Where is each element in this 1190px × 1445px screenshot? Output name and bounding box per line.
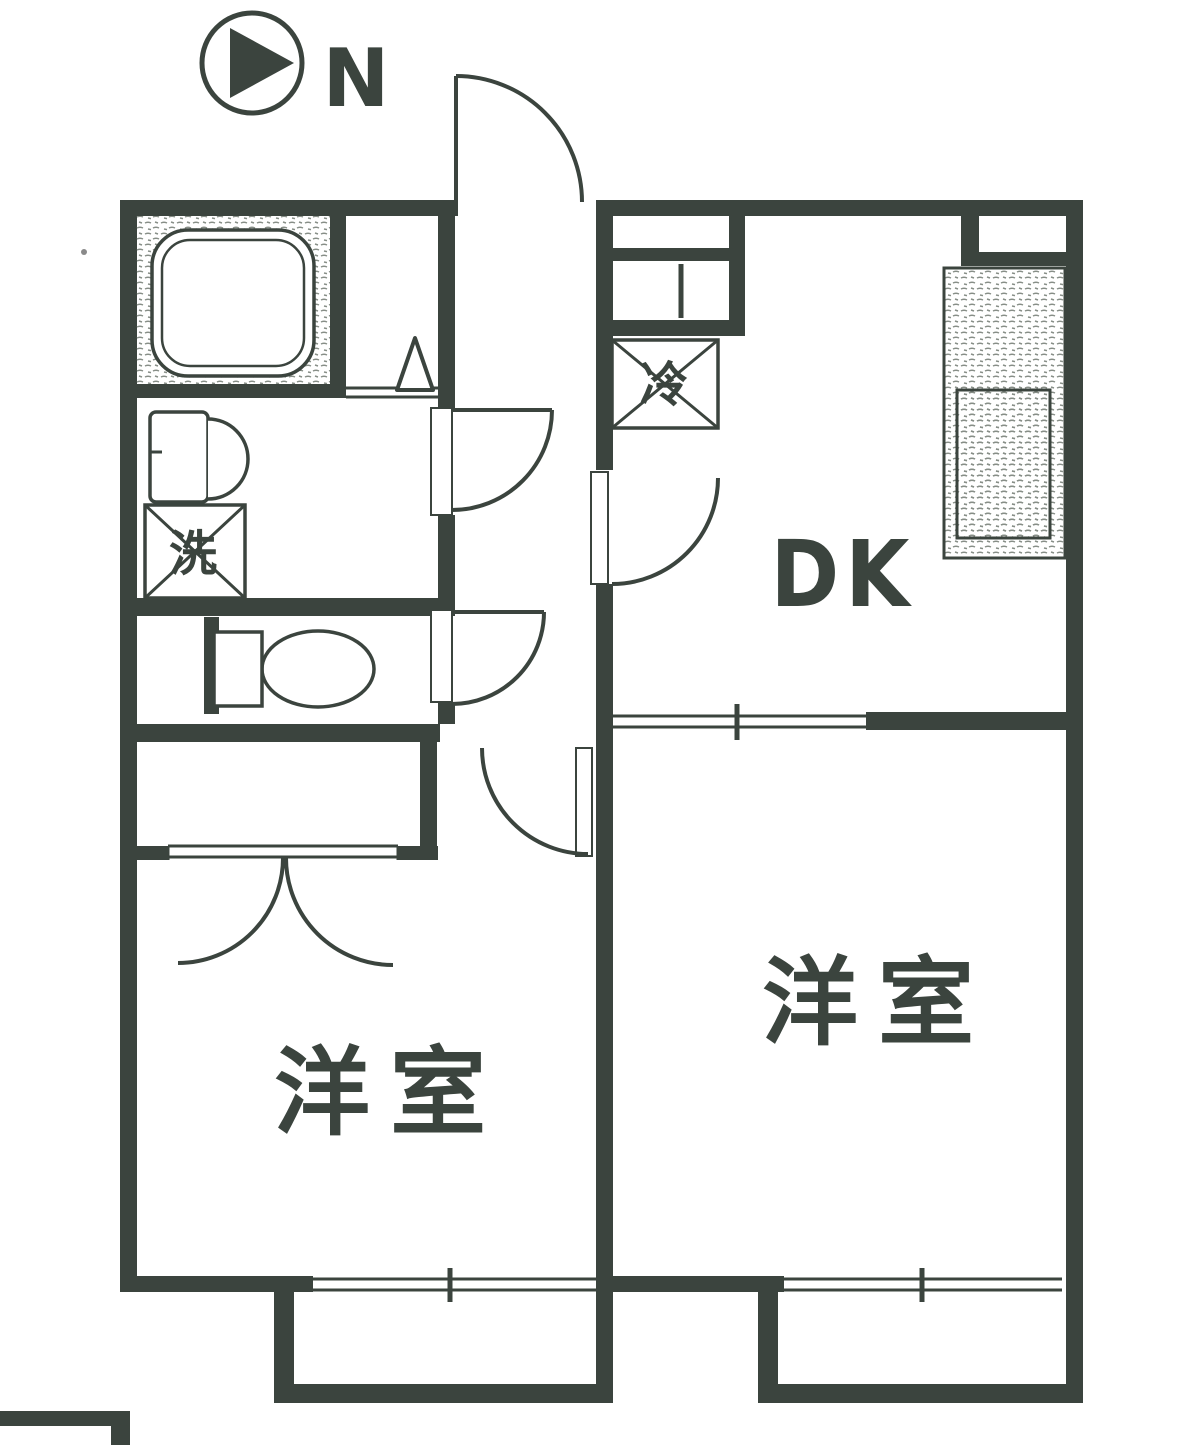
wall-central-lower [596,730,613,1403]
entrance-door-arc [456,76,582,202]
dk-door-arc [612,478,718,584]
bathtub [136,216,330,384]
wall-closet-bottom-west [120,846,168,860]
washroom-door-leaf [431,408,452,515]
toilet-door-arc [452,612,544,704]
wall-toilet-bottom [120,724,440,742]
adjacent-plan-fragment [0,1411,130,1445]
balcony-right-wall-bottom [758,1384,1078,1403]
wall-utility-box-right [729,216,745,328]
wall-washroom-bottom [120,598,455,616]
wall-corridor-left-a [438,216,455,408]
wall-bottom-right-room [596,1276,784,1292]
dk-room-label: DK [771,521,916,628]
kitchen-sink [957,390,1050,538]
toilet-tank [214,632,262,706]
closet-double-doors [168,846,398,965]
wall-left [120,200,137,1292]
wall-top-left [120,200,458,216]
north-label: N [323,32,390,125]
washroom-door-arc [452,410,552,510]
stray-marks [0,249,130,1445]
left-room-window [313,1268,596,1302]
western-room-right-label: 洋室 [762,947,994,1059]
wall-central-upper-b [596,584,613,730]
north-arrow-icon [230,28,294,98]
wall-bottom-left-room [120,1276,313,1292]
wall-bath-right [330,200,346,398]
washing-machine-box: 洗 [145,505,245,598]
toilet-door-leaf [431,610,452,702]
toilet [214,631,374,707]
wall-right [1066,200,1083,1403]
wall-closet-right [420,724,437,860]
dk-door [591,472,718,584]
closet-door-arc-right [286,858,393,965]
washroom-door [431,408,552,515]
wall-corridor-left-b [438,515,455,610]
wall-utility-box-bottom [596,320,745,336]
floor-plan-drawing: N [0,0,1190,1445]
washing-machine-label: 洗 [169,526,217,582]
dk-door-leaf [591,472,608,584]
toilet-bowl [262,631,374,707]
wall-utility-box-divider [600,248,729,261]
wash-basin-cabinet [150,412,208,502]
balcony-left-wall-bottom [274,1384,598,1403]
closet-door-arc-left [178,858,283,963]
left-room-door-arc [482,748,588,854]
wall-bath-bottom [120,384,346,398]
left-room-door [482,748,592,856]
western-room-left-label: 洋室 [274,1037,506,1149]
wall-closet-bottom-east [398,846,438,860]
dk-room-sliding-door [613,704,866,740]
floor-plan-page: N [0,0,1190,1445]
entrance-door [456,76,582,202]
wall-top-right [596,200,1082,216]
toilet-door [431,610,544,704]
refrigerator-box: 冷 [612,340,718,428]
closet-door-frame [168,846,398,860]
stray-dot [81,249,87,255]
wash-basin-bowl [208,419,248,499]
water-heater-icon [397,338,433,390]
balconies [274,1292,1078,1403]
kitchen-counter [944,268,1065,558]
wall-kitchen-niche-bottom [961,252,1074,266]
wall-kitchen-niche-left [961,216,979,254]
wash-basin [150,412,248,502]
refrigerator-label: 冷 [640,357,688,413]
bathtub-outer [152,230,314,376]
wall-dk-room-partition [866,712,1066,730]
right-room-window [784,1268,1062,1302]
left-room-door-leaf [576,748,592,856]
north-compass: N [202,13,389,125]
